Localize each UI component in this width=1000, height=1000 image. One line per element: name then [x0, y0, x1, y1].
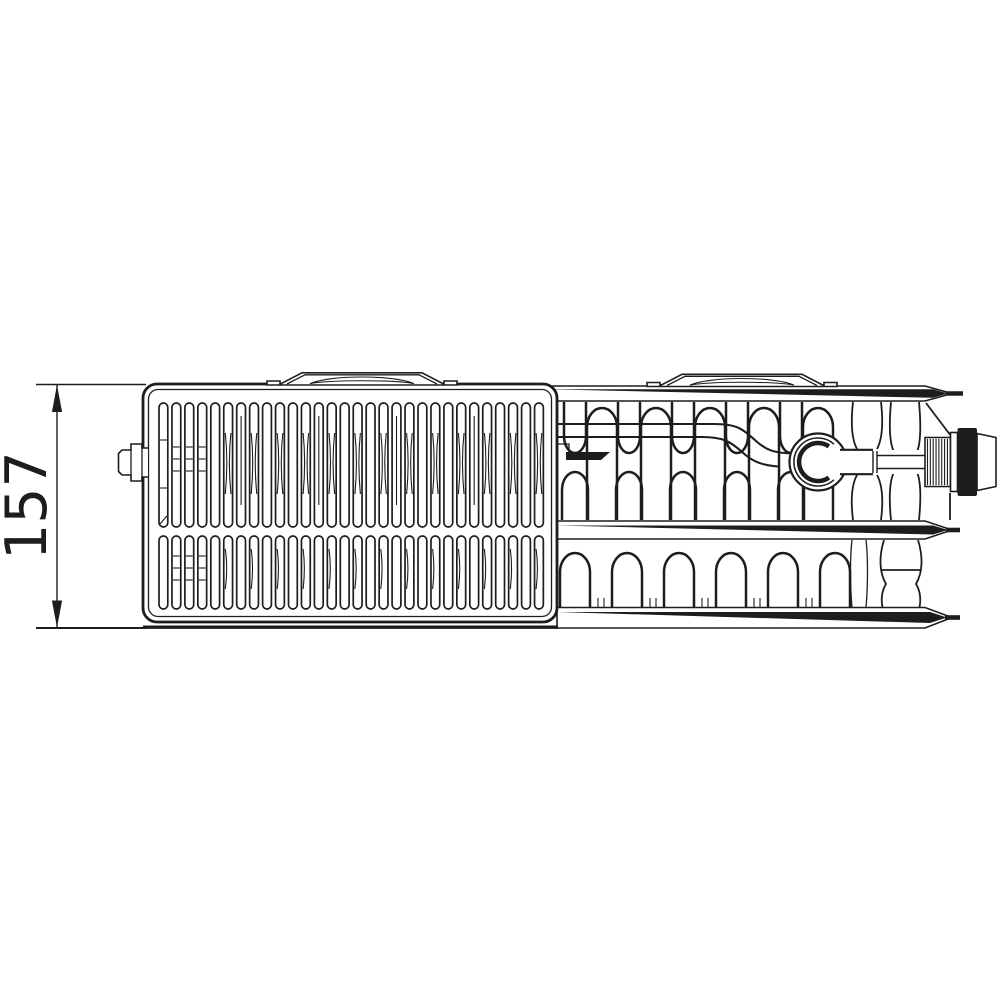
valve-union-nut — [958, 428, 978, 496]
fin-lower-loop — [716, 553, 746, 608]
fin-hanging-loop — [672, 402, 694, 453]
valve-washer — [951, 433, 958, 492]
fin-bump — [616, 472, 642, 520]
mounting-bracket-left — [267, 373, 457, 385]
top-right-corner-line — [926, 403, 951, 436]
valve-threads — [925, 438, 951, 487]
radiator-technical-drawing: 157 — [0, 0, 1000, 1000]
convector-fins-lower — [560, 553, 850, 608]
weld-bar — [566, 452, 610, 460]
fin-bump — [670, 472, 696, 520]
air-vent-plug — [119, 444, 149, 481]
pipe-lower-line — [556, 437, 778, 467]
fin-hanging-loop — [618, 402, 640, 453]
fin-lower-loop — [560, 553, 590, 608]
valve-cap — [977, 434, 996, 491]
drawing-canvas: 157 — [0, 0, 1000, 1000]
fin-lower-loop — [768, 553, 798, 608]
fin-bump — [724, 472, 750, 520]
top-panel-edge — [545, 386, 963, 436]
pipe-upper-line — [556, 424, 792, 454]
arrowhead-down-icon — [52, 601, 62, 628]
grille-panel — [143, 384, 557, 622]
dimension-annotation: 157 — [0, 385, 146, 629]
fin-hanging-loop — [564, 402, 586, 453]
fin-bump — [562, 472, 588, 520]
fin-lower-loop — [664, 553, 694, 608]
dimension-label: 157 — [0, 451, 60, 560]
end-channels-lower — [851, 540, 922, 609]
mounting-bracket-right — [647, 374, 837, 386]
valve-assembly — [925, 428, 996, 496]
fin-lower-loop — [820, 553, 850, 608]
pipe-fitting — [790, 434, 927, 491]
air-vent-body — [119, 444, 149, 481]
arrowhead-up-icon — [52, 385, 62, 412]
fin-lower-loop — [612, 553, 642, 608]
